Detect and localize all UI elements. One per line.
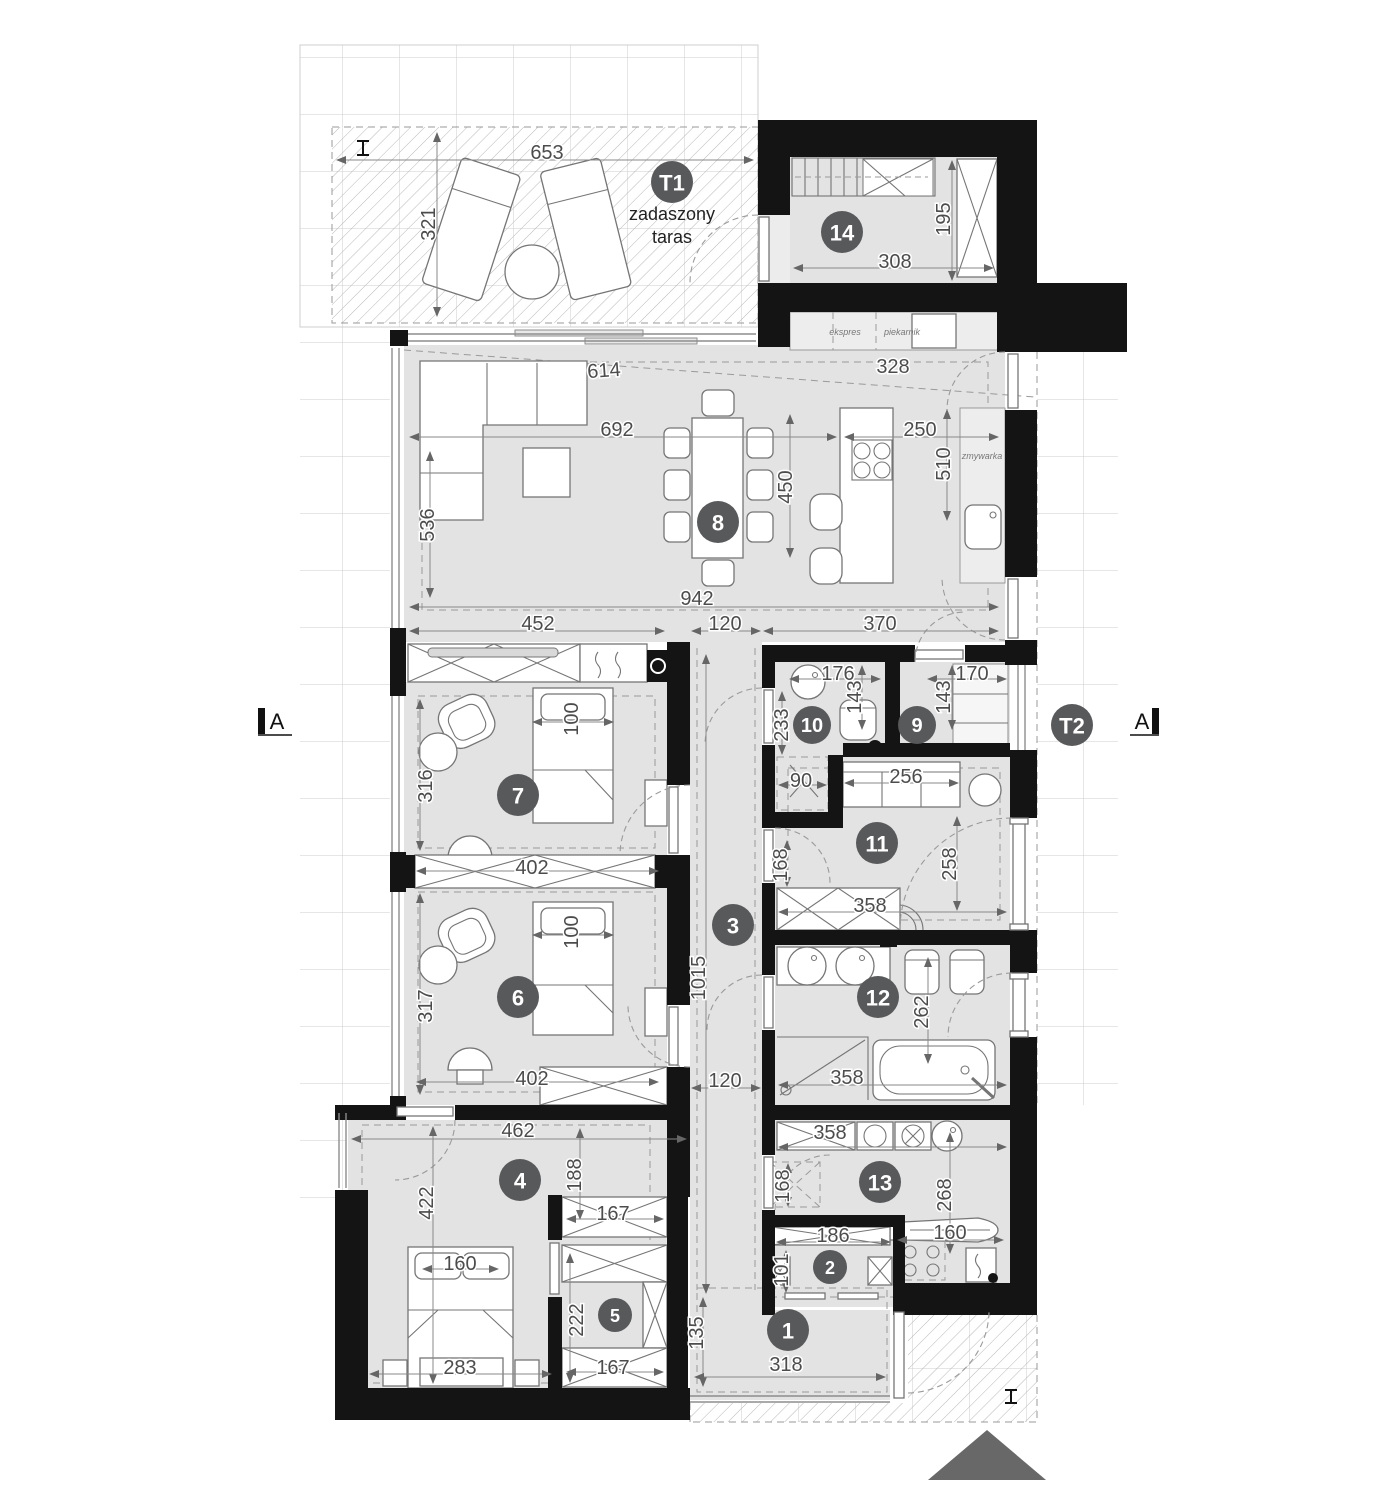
kitchen-sink	[965, 505, 1001, 549]
room-badge-3: 3	[712, 904, 754, 946]
svg-text:13: 13	[868, 1171, 892, 1196]
svg-text:9: 9	[911, 715, 922, 737]
dimension-label: 317	[415, 989, 437, 1022]
svg-text:4: 4	[514, 1169, 527, 1194]
dimension-label: 614	[587, 359, 622, 383]
dimension-label: 318	[769, 1354, 802, 1376]
floor-plan-drawing: 6533213081956143286922505364505109424521…	[0, 0, 1400, 1485]
bidet	[950, 950, 984, 994]
dimension-label: 160	[443, 1253, 476, 1275]
dimension-label: 250	[903, 419, 936, 441]
dimension-label: 120	[708, 613, 741, 635]
dimension-label: 186	[816, 1225, 849, 1247]
dimension-label: 100	[561, 915, 583, 948]
section-label-right: A	[1135, 709, 1150, 734]
dimension-label: 358	[853, 895, 886, 917]
espresso-label: ekspres	[829, 327, 861, 337]
dimension-label: 402	[515, 857, 548, 879]
svg-text:6: 6	[512, 986, 524, 1011]
wardrobe	[957, 159, 997, 277]
dimension-label: 536	[417, 508, 439, 541]
dimension-label: 370	[863, 613, 896, 635]
terrace-table	[505, 245, 559, 299]
dimension-label: 328	[876, 356, 909, 378]
dimension-label: 195	[933, 202, 955, 235]
bathtub	[873, 1040, 995, 1100]
svg-text:11: 11	[865, 832, 888, 857]
dimension-label: 316	[415, 769, 437, 802]
toilet	[905, 950, 939, 994]
svg-text:14: 14	[830, 221, 855, 246]
tv	[428, 648, 558, 657]
water-heater	[966, 1248, 998, 1283]
dimension-label: 168	[772, 1169, 794, 1202]
room-badge-5: 5	[598, 1298, 632, 1332]
room-badge-13: 13	[859, 1161, 901, 1203]
dimension-label: 143	[844, 680, 866, 713]
svg-text:1: 1	[782, 1319, 794, 1344]
dimension-label: 402	[515, 1068, 548, 1090]
stool	[810, 548, 842, 584]
round-table	[969, 774, 1001, 806]
svg-text:12: 12	[866, 986, 890, 1011]
dimension-label: 321	[418, 207, 440, 240]
room-badge-2: 2	[813, 1250, 847, 1284]
dimension-label: 653	[530, 142, 563, 164]
svg-text:8: 8	[712, 511, 724, 536]
dimension-label: 135	[686, 1316, 708, 1349]
dimension-label: 120	[708, 1070, 741, 1092]
room-badge-9: 9	[898, 706, 936, 744]
dimension-label: 258	[939, 847, 961, 880]
room-badge-14: 14	[821, 211, 863, 253]
dimension-label: 450	[775, 470, 797, 503]
dimension-label: 358	[813, 1122, 846, 1144]
stool	[810, 494, 842, 530]
svg-text:2: 2	[825, 1258, 835, 1278]
dimension-label: 256	[889, 766, 922, 788]
dimension-label: 101	[771, 1253, 793, 1286]
terrace-label-2: taras	[652, 227, 692, 247]
dimension-label: 167	[596, 1203, 629, 1225]
svg-text:3: 3	[727, 914, 739, 939]
dimension-label: 170	[955, 663, 988, 685]
coffee-table	[523, 448, 570, 497]
room-badge-T2: T2	[1051, 704, 1093, 746]
dimension-label: 692	[600, 419, 633, 441]
dimension-label: 308	[878, 251, 911, 273]
dimension-label: 167	[596, 1357, 629, 1379]
dimension-label: 188	[564, 1158, 586, 1191]
dimension-label: 358	[830, 1067, 863, 1089]
column	[868, 740, 882, 754]
dimension-label: 222	[566, 1303, 588, 1336]
dimension-label: 942	[680, 588, 713, 610]
room-badge-4: 4	[499, 1159, 541, 1201]
room-badge-8: 8	[697, 501, 739, 543]
section-bar-right	[1152, 708, 1159, 734]
dimension-label: 90	[790, 770, 812, 792]
dimension-label: 510	[933, 447, 955, 480]
dimension-label: 422	[416, 1186, 438, 1219]
svg-text:7: 7	[512, 784, 524, 809]
room-badge-10: 10	[793, 706, 831, 744]
dishwasher-label: zmywarka	[961, 451, 1003, 461]
dimension-label: 143	[933, 680, 955, 713]
room-badge-T1: T1	[651, 161, 693, 203]
washbasin	[791, 665, 825, 699]
kitchen-island	[840, 408, 893, 583]
dimension-label: 1015	[688, 956, 710, 1001]
north-arrow-icon	[928, 1430, 1046, 1480]
dimension-label: 462	[501, 1120, 534, 1142]
kitchen-counter	[960, 408, 1005, 583]
room-badge-11: 11	[856, 822, 898, 864]
dimension-label: 283	[443, 1357, 476, 1379]
terrace-label: zadaszony	[629, 204, 715, 224]
room-badge-12: 12	[857, 976, 899, 1018]
dimension-label: 452	[521, 613, 554, 635]
section-label-left: A	[270, 709, 285, 734]
dimension-label: 262	[911, 995, 933, 1028]
svg-text:10: 10	[801, 715, 823, 737]
svg-text:T2: T2	[1059, 714, 1085, 739]
svg-text:T1: T1	[659, 171, 685, 196]
oven-label: piekarnik	[883, 327, 921, 337]
section-bar-left	[258, 708, 265, 734]
room-badge-1: 1	[767, 1309, 809, 1351]
dimension-label: 268	[934, 1178, 956, 1211]
dimension-label: 168	[770, 848, 792, 881]
dimension-label: 233	[771, 708, 793, 741]
floor-plan-canvas: 6533213081956143286922505364505109424521…	[0, 0, 1400, 1485]
washer	[857, 1122, 893, 1150]
dimension-label: 160	[933, 1222, 966, 1244]
room-badge-6: 6	[497, 976, 539, 1018]
dimension-label: 100	[561, 702, 583, 735]
svg-text:5: 5	[610, 1306, 620, 1326]
room-badge-7: 7	[497, 774, 539, 816]
